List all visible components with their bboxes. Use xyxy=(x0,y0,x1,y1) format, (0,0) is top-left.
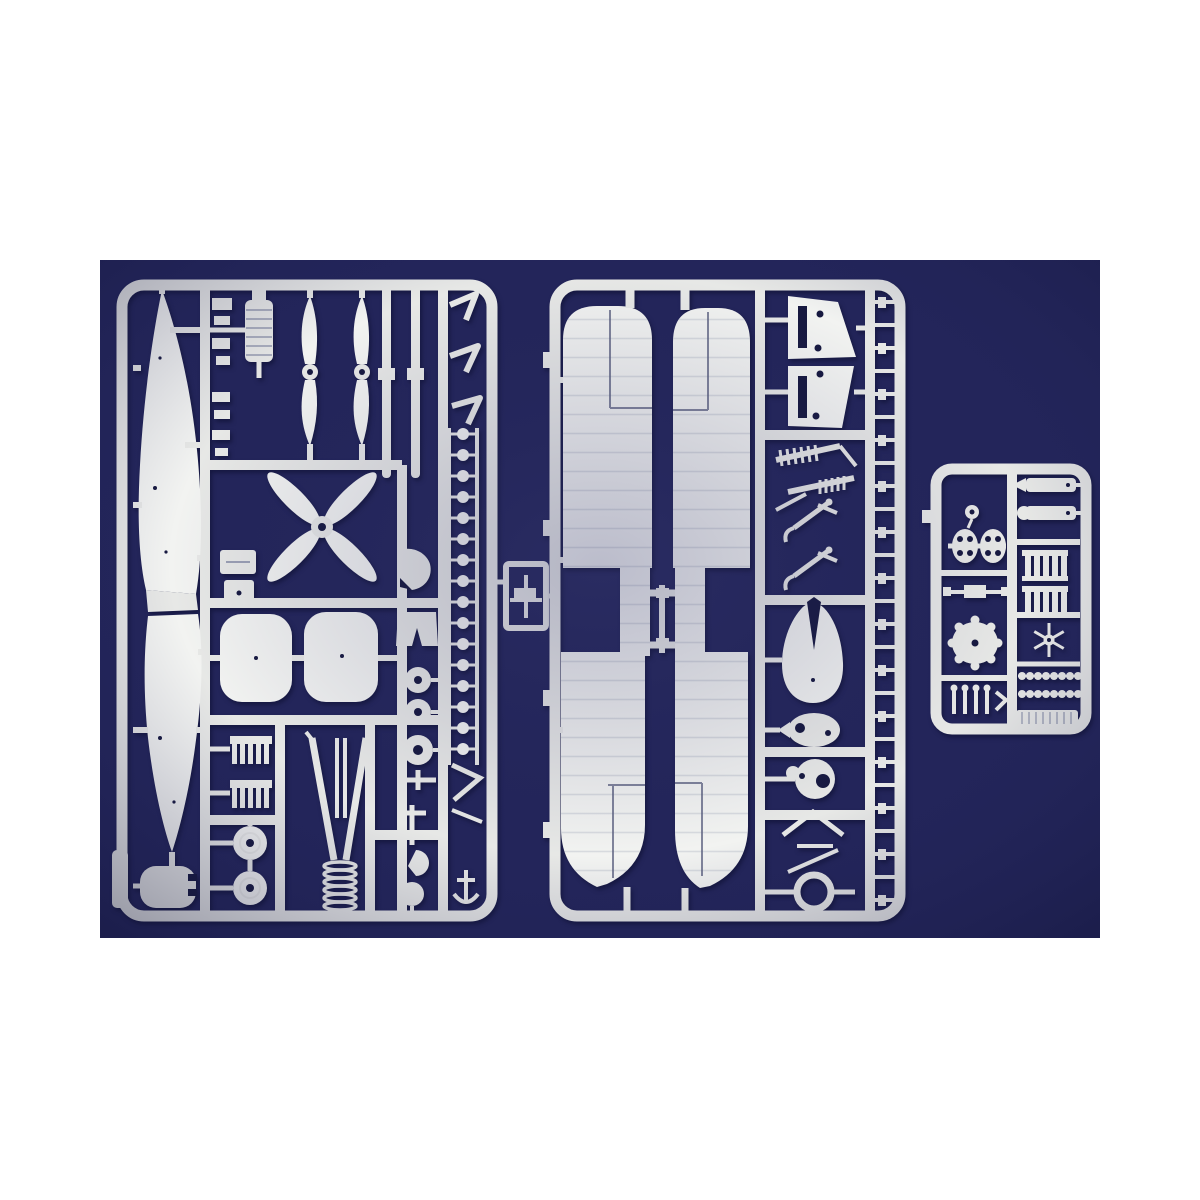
sprue-photo-canvas xyxy=(100,260,1100,938)
sprue-photo xyxy=(100,260,1100,938)
photo-vignette xyxy=(100,260,1100,938)
